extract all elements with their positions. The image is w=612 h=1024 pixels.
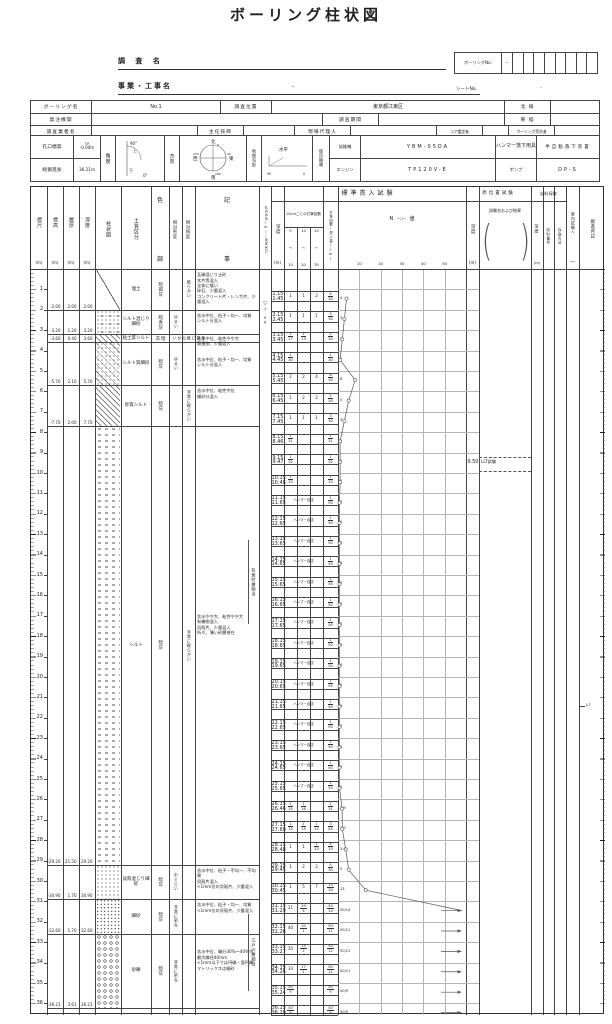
layer-thickness: 2.00: [63, 420, 78, 426]
spt-nvalue-label: 5: [340, 867, 360, 873]
spt-nvalue-label: 50/12: [340, 949, 360, 955]
spt-depth-bottom: 7.45: [272, 419, 284, 424]
spt-nvalue-label: 0: [340, 561, 360, 567]
insitu-test-name: LLT試験: [481, 459, 521, 465]
scale-tick-label: 18: [33, 633, 43, 640]
hole-elevation-label: 孔口標高: [31, 136, 73, 158]
scale-tick: [44, 820, 48, 821]
spt-nvalue-label: 50/14: [340, 908, 360, 914]
angle-label-cell: 角度: [101, 136, 116, 181]
info-row: ボーリング名 No.1 調査位置 東京都江東区 北 緯: [31, 101, 599, 113]
spt-depth-top: 2.15: [272, 312, 284, 317]
period-value: [379, 114, 505, 126]
col-header: 深度: [79, 189, 95, 255]
spt-total-cell: 150: [323, 536, 338, 546]
scale-tick: [44, 718, 48, 719]
scale-tick: [44, 371, 48, 372]
spt-selfsink-label: ハンマー自沈: [284, 536, 323, 546]
spt-nvalue-label: 5: [340, 398, 360, 404]
spt-selfsink-label: ハンマー自沈: [284, 679, 323, 689]
scale-tick: [44, 514, 48, 515]
angle-diagram-svg: 90° 上 下 0°: [117, 136, 163, 180]
client-value: [92, 114, 323, 126]
pump-label: ポンプ: [496, 158, 536, 181]
spt-nvalue-label: 0: [340, 520, 360, 526]
spt-depth-bottom: 27.60: [272, 827, 284, 832]
nvalue-axis-label: 50: [438, 260, 452, 268]
scale-tick: [44, 412, 48, 413]
spt-selfsink-label: ハンマー自沈: [284, 577, 323, 587]
scale-tick-label: 24: [33, 755, 43, 762]
spt-depth-bottom: 1.45: [272, 296, 284, 301]
spt-total-cell: 150: [323, 658, 338, 668]
layer-thickness: 3.61: [63, 1002, 78, 1008]
nvalue-axis-label: 30: [395, 260, 409, 268]
svg-text:180: 180: [215, 172, 221, 176]
scale-tick: [44, 759, 48, 760]
spt-count-cell: 2: [310, 862, 323, 872]
spt-count-cell: 40: [284, 923, 297, 933]
layer-boundary-line: [47, 1008, 259, 1009]
location-value: 東京都江東区: [272, 101, 505, 113]
svg-text:90°: 90°: [130, 141, 137, 146]
counts-header: 10cmごとの打撃回数: [284, 202, 323, 226]
latitude-value: [551, 101, 599, 113]
scale-tick-label: 21: [33, 694, 43, 701]
spt-depth-top: 34.15: [272, 965, 284, 970]
spt-depth-top: 9.15: [272, 455, 284, 460]
spt-nvalue-label: 0: [340, 704, 360, 710]
layer-thickness: 0.40: [63, 336, 78, 342]
col-header-unit: (m): [79, 257, 95, 269]
spt-selfsink-label: ハンマー自沈: [284, 617, 323, 627]
column-border: [79, 187, 80, 1015]
spt-depth-top: 28.15: [272, 842, 284, 847]
layer-elevation: -7.70: [47, 420, 62, 426]
layer-elevation: -30.90: [47, 893, 62, 899]
spt-selfsink-label: ハンマー自沈: [284, 515, 323, 525]
scale-tick-label: 26: [33, 796, 43, 803]
layer-thickness: 2.10: [63, 379, 78, 385]
nvalue-gridline: [445, 269, 446, 1015]
spt-total-cell: 150: [323, 760, 338, 770]
nvalue-arrowhead: [458, 929, 462, 932]
layer-depth: 3.60: [79, 336, 94, 342]
survey-info-table: ボーリング名 No.1 調査位置 東京都江東区 北 緯 発注機関 調査期間 東 …: [30, 100, 600, 139]
spt-depth-top: 10.15: [272, 475, 284, 480]
insitu-paren-open: (: [481, 205, 493, 279]
scale-tick-label: 31: [33, 898, 43, 905]
spt-total-cell: 150: [323, 740, 338, 750]
scale-tick-label: 22: [33, 714, 43, 721]
column-pattern: [96, 269, 121, 310]
formation-annotation: 江戸川層相当: [248, 914, 258, 992]
spt-depth-bottom: 22.65: [272, 725, 284, 730]
spt-count-cell: 4: [310, 373, 323, 383]
scale-tick-label: 19: [33, 653, 43, 660]
nvalue-gridline: [402, 269, 403, 1015]
layer-elevation: -3.20: [47, 328, 62, 334]
boring-name-label: ボーリング名: [31, 101, 92, 113]
spt-nvalue-label: 0: [340, 581, 360, 587]
layer-thickness: 1.70: [63, 893, 78, 899]
svg-text:上: 上: [133, 147, 137, 153]
layer-remarks: 含水中位、粒子・均一、均質 <1mm位の貝殻片、少量混入: [197, 902, 258, 913]
spt-count-cell: 171: [297, 964, 310, 974]
spt-depth-top: 29.15: [272, 863, 284, 868]
spt-depth-bottom: 10.48: [272, 480, 284, 485]
layer-color: 暗灰: [151, 334, 169, 342]
layer-color: 暗灰: [151, 865, 169, 900]
sample-no-header: 試料番号: [543, 203, 554, 269]
spt-depth-top: 12.15: [272, 516, 284, 521]
scale-tick-label: 9: [33, 449, 43, 456]
spt-depth-top: 32.15: [272, 924, 284, 929]
spt-depth-bottom: 8.46: [272, 439, 284, 444]
col-header: 層厚: [63, 189, 79, 255]
project-name-underline: [118, 94, 480, 95]
layer-soil-name: 貝殻混じり細砂: [121, 865, 151, 900]
latitude-label: 北 緯: [505, 101, 551, 113]
col-header-consistency: 相対稠度: [182, 189, 195, 269]
layer-density: 非常に密な: [169, 899, 182, 934]
layer-thickness: 1.20: [63, 328, 78, 334]
layer-color: 暗灰: [151, 385, 169, 426]
spt-total-cell: 133: [323, 475, 338, 485]
scale-tick: [44, 534, 48, 535]
boring-no-cell: [555, 53, 566, 73]
spt-depth-bottom: 33.27: [272, 949, 284, 954]
layer-soil-name: 砂礫: [121, 934, 151, 1008]
spt-count-cell: 133: [284, 475, 297, 485]
spt-total-cell: 150: [323, 556, 338, 566]
scale-tick-label: 35: [33, 980, 43, 987]
column-border: [531, 187, 532, 1015]
spt-count-cell: 1: [284, 393, 297, 403]
project-name-label: 事業・工事名: [118, 81, 172, 91]
spt-count-cell: 505: [284, 1005, 297, 1015]
period-label: 調査期間: [323, 114, 379, 126]
spt-count-cell: 115: [284, 821, 297, 831]
spt-selfsink-label: ハンマー自沈: [284, 597, 323, 607]
scale-tick-label: 16: [33, 592, 43, 599]
counts-range-header: 20〜30: [310, 227, 323, 269]
spt-depth-bottom: 16.65: [272, 602, 284, 607]
nvalue-axis-label: 40: [416, 260, 430, 268]
spt-depth-bottom: 2.45: [272, 317, 284, 322]
page-title: ボーリング柱状図: [0, 4, 612, 25]
spt-depth-bottom: 13.65: [272, 541, 284, 546]
spt-nvalue-label: 0: [340, 541, 360, 547]
spt-nvalue-label: 3.6: [340, 847, 360, 853]
layer-elevation: -32.60: [47, 928, 62, 934]
spt-depth-bottom: 24.65: [272, 765, 284, 770]
compass-icon: 北 南 西 東 0 90 180 270: [181, 136, 245, 180]
spt-nvalue-label: 2.0: [340, 826, 360, 832]
scale-tick: [44, 738, 48, 739]
spt-selfsink-label: ハンマー自沈: [284, 658, 323, 668]
layer-color: 暗灰: [151, 934, 169, 1008]
spt-depth-top: 18.15: [272, 638, 284, 643]
layer-depth: 7.70: [79, 420, 94, 426]
survey-name-label: 調 査 名: [118, 56, 164, 66]
spt-depth-bottom: 11.65: [272, 500, 284, 505]
spt-count-cell: 1: [284, 291, 297, 301]
slope-diagram-svg: 水平 90 0: [263, 136, 311, 180]
project-name-value: -: [292, 83, 294, 90]
sheet-no-value: -: [540, 86, 542, 91]
scale-tick-label: 6: [33, 388, 43, 395]
spt-total-cell: 150: [323, 577, 338, 587]
spt-selfsink-label: ハンマー自沈: [284, 719, 323, 729]
scale-tick-label: 33: [33, 939, 43, 946]
machine-label-cell: 使用機種: [313, 136, 330, 181]
spt-count-cell: 509: [284, 985, 297, 995]
col-header: 標尺: [31, 189, 47, 255]
layer-color: 暗灰: [151, 426, 169, 865]
angle-diagram: 90° 上 下 0°: [116, 136, 165, 181]
spt-nvalue-label: 4: [340, 296, 360, 302]
spt-depth-top: 23.15: [272, 740, 284, 745]
column-border: [195, 187, 196, 1015]
scale-tick: [44, 289, 48, 290]
spt-count-cell: 1: [297, 413, 310, 423]
spt-depth-top: 25.15: [272, 781, 284, 786]
spt-group-header: 標準貫入試験: [271, 187, 466, 201]
sample-method-header: 採取方法: [554, 203, 566, 269]
spt-depth-top: 4.15: [272, 353, 284, 358]
spt-depth-top: 11.15: [272, 495, 284, 500]
spt-total-cell: 509: [323, 985, 338, 995]
layer-density: ゆるい: [169, 342, 182, 385]
spt-count-cell: 117: [284, 332, 297, 342]
spt-count-cell: 152: [297, 944, 310, 954]
spt-count-cell: 1: [284, 862, 297, 872]
spt-total-cell: 330: [323, 311, 338, 321]
scale-tick-label: 7: [33, 408, 43, 415]
lab-test-dash: 一: [566, 257, 579, 269]
layer-thickness: 1.70: [63, 928, 78, 934]
spt-total-cell: 330: [323, 413, 338, 423]
spt-total-cell: 5014: [323, 903, 338, 913]
layer-depth: 36.21: [79, 1002, 94, 1008]
spt-nvalue-label: 3: [340, 418, 360, 424]
scale-tick-label: 10: [33, 470, 43, 477]
spt-count-cell: 294: [297, 903, 310, 913]
spt-depth-top: 20.15: [272, 679, 284, 684]
svg-text:北: 北: [211, 138, 216, 145]
scale-tick: [44, 391, 48, 392]
scale-tick-label: 2: [33, 306, 43, 313]
scale-tick-label: 29: [33, 857, 43, 864]
machine-type-label: 使用機種: [318, 149, 324, 167]
spt-total-cell: 530: [323, 393, 338, 403]
column-border: [554, 187, 555, 1015]
slope-label-cell: 地盤勾配: [247, 136, 262, 181]
svg-text:西: 西: [193, 156, 198, 162]
svg-text:0°: 0°: [143, 173, 148, 178]
elevation-length-labels: 孔口標高 総掘進長: [31, 136, 74, 181]
spt-count-cell: 115: [297, 821, 310, 831]
layer-density: 中ぐらい: [169, 865, 182, 900]
boring-no-cell: [565, 53, 576, 73]
svg-text:0: 0: [303, 172, 305, 176]
spt-count-cell: 2: [297, 373, 310, 383]
spt-nvalue-label: 13: [340, 887, 360, 893]
spt-depth-bottom: 15.65: [272, 582, 284, 587]
spt-count-cell: 1: [284, 883, 297, 893]
layer-remarks: 含水中位、粒子・均一、均質 シルト分混入: [197, 357, 258, 368]
spt-depth-top: 31.15: [272, 903, 284, 908]
spt-depth-bottom: 4.45: [272, 357, 284, 362]
column-border: [338, 187, 339, 1015]
scale-tick: [44, 595, 48, 596]
col-header-column: 柱状図: [95, 189, 121, 269]
spt-count-cell: 2: [284, 373, 297, 383]
boring-no-cell: [576, 53, 587, 73]
spt-count-cell: 113: [297, 332, 310, 342]
scale-tick: [44, 963, 48, 964]
spt-depth-top: 19.15: [272, 659, 284, 664]
insitu-test-top: [479, 457, 531, 458]
column-pattern: [96, 865, 121, 900]
scale-tick: [44, 575, 48, 576]
spt-count-cell: 35: [284, 944, 297, 954]
boring-no-box: ボーリングNo. -: [454, 52, 598, 74]
engine-value: TP120V-E: [361, 158, 495, 181]
spt-nvalue-label: 2: [340, 337, 360, 343]
spt-nvalue-label: 0: [340, 622, 360, 628]
column-pattern: [96, 334, 121, 342]
scale-tick-label: 8: [33, 429, 43, 436]
total-depth-label: 総掘進長: [31, 158, 73, 181]
nvalue-axis-label: 10: [352, 260, 366, 268]
column-pattern: [96, 342, 121, 385]
spt-total-cell: 433: [323, 842, 338, 852]
scale-tick-label: 23: [33, 735, 43, 742]
scale-tick-label: 30: [33, 878, 43, 885]
svg-text:0: 0: [217, 143, 219, 147]
spt-total-cell: 430: [323, 291, 338, 301]
sample-group-header: 試料採取: [531, 187, 566, 201]
boring-no-cell: [586, 53, 597, 73]
layer-soil-name: 粘土質シルト: [121, 334, 151, 342]
spt-depth-top: 17.15: [272, 618, 284, 623]
spt-count-cell: 1: [310, 311, 323, 321]
spt-nvalue-label: 0: [340, 683, 360, 689]
layer-soil-name: シルト混じり細砂: [121, 310, 151, 334]
spt-depth-top: 24.15: [272, 761, 284, 766]
column-border: [47, 187, 48, 1015]
spt-depth-top: 21.15: [272, 699, 284, 704]
col-header-water: 孔内水位(m)/測定月日: [259, 189, 271, 269]
info-row: 発注機関 調査期間 東 経: [31, 113, 599, 126]
counts-range-header: 0〜10: [284, 227, 297, 269]
spt-depth-top: 13.15: [272, 536, 284, 541]
spt-depth-bottom: 36.20: [272, 1010, 284, 1015]
spt-depth-top: 5.15: [272, 373, 284, 378]
layer-soil-name: シルト質細砂: [121, 342, 151, 385]
spt-depth-header: 深度: [271, 203, 284, 255]
scale-tick-label: 11: [33, 490, 43, 497]
scale-tick: [44, 432, 48, 433]
direction-label: 方向: [169, 153, 176, 164]
boring-no-cell: [512, 53, 523, 73]
longitude-value: [551, 114, 599, 126]
scale-tick-label: 1: [33, 286, 43, 293]
spt-depth-top: 16.15: [272, 597, 284, 602]
slope-label: 地盤勾配: [251, 149, 257, 167]
slope-diagram: 水平 90 0: [262, 136, 313, 181]
scale-tick-label: 20: [33, 674, 43, 681]
hammer-pump-labels: ハンマー落下用具 ポンプ: [496, 136, 537, 181]
col-header-unit: (m): [63, 257, 79, 269]
spt-nvalue-label: 0: [340, 602, 360, 608]
spt-nvalue-label: 1: [340, 439, 360, 445]
layer-elevation: -5.70: [47, 379, 62, 385]
scale-tick-label: 34: [33, 959, 43, 966]
scale-tick: [44, 636, 48, 637]
nvalue-gridline: [423, 269, 424, 1015]
scale-tick-label: 4: [33, 347, 43, 354]
scale-tick: [44, 983, 48, 984]
spt-nvalue-label: 1: [340, 479, 360, 485]
layer-consistency: 非常に軟らかい: [182, 334, 195, 342]
spt-nvalue-label: 0: [340, 745, 360, 751]
hole-elevation-value: T.P.-0.00m: [74, 136, 100, 158]
water-level-mark: ▽1.96: [260, 300, 271, 326]
spt-total-cell: 150: [323, 617, 338, 627]
scale-tick-label: 14: [33, 551, 43, 558]
spt-depth-top: 15.15: [272, 577, 284, 582]
column-border: [579, 187, 580, 1015]
svg-text:270: 270: [193, 152, 199, 156]
scale-tick-label: 5: [33, 368, 43, 375]
insitu-band-divider: [466, 201, 566, 202]
spt-depth-bottom: 5.45: [272, 378, 284, 383]
scale-tick: [44, 840, 48, 841]
insitu-group-header: 原位置試験: [466, 187, 531, 201]
scale-tick-label: 13: [33, 531, 43, 538]
scale-tick-label: 25: [33, 776, 43, 783]
boring-no-cell: [533, 53, 544, 73]
boring-log-table: 標尺(m)標高(m)層厚(m)深度(m)柱状図土質区分色調相対密度相対稠度記事孔…: [30, 186, 604, 1014]
right-ruler-major: [600, 269, 605, 1004]
drilling-date-tick: [579, 706, 585, 707]
spt-depth-bottom: 34.26: [272, 969, 284, 974]
nvalue-axis-label: 20: [374, 260, 388, 268]
spt-total-cell: 150: [323, 495, 338, 505]
spt-depth-bottom: 21.65: [272, 704, 284, 709]
angle-label: 角度: [105, 153, 112, 164]
layer-remarks: 含水中位、粒子・均一、均質 シルト分混入: [197, 313, 258, 324]
spt-nvalue-label: 0: [340, 643, 360, 649]
spt-total-cell: 130: [323, 352, 338, 362]
spt-depth-top: 3.15: [272, 332, 284, 337]
spt-nvalue-label: 8: [340, 377, 360, 383]
spt-total-cell: 530: [323, 862, 338, 872]
location-label: 調査位置: [221, 101, 272, 113]
layer-remarks: 含水中位、粘性やや大 腐植物、少量混入: [197, 336, 258, 347]
nvalue-point: [364, 889, 367, 892]
spt-total-cell: 231: [323, 801, 338, 811]
layer-elevation: -3.60: [47, 336, 62, 342]
spt-depth-bottom: 18.65: [272, 643, 284, 648]
column-border: [566, 187, 567, 1015]
insitu-test-bottom: [479, 471, 531, 472]
svg-text:90: 90: [267, 172, 271, 176]
scale-tick: [44, 677, 48, 678]
